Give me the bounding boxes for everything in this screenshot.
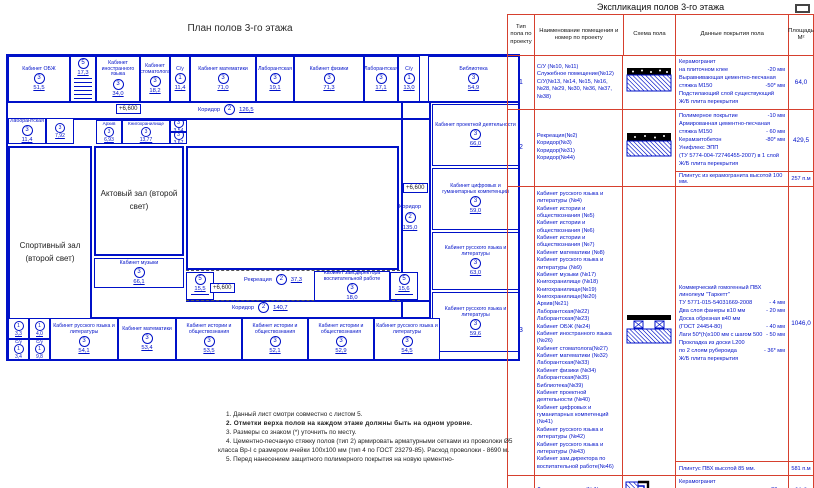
rooms-cell: Рекреация(№2)Коридор(№3)Коридор(№31)Кори… <box>535 110 623 186</box>
room: Кабинет русского языка и литературы359,6 <box>432 292 519 352</box>
coating-cell: Керамогранитна плиточном клее-20 ммВырав… <box>676 56 789 109</box>
room-label: Кабинет русского языка и литературы <box>52 324 116 336</box>
coating-layer-name: Унифлекс ЭПП <box>679 145 718 152</box>
room: Лаборантская319,1 <box>256 56 294 102</box>
room: Кабинет русского языка и литературы363,0 <box>432 232 519 290</box>
coating-layer-name: (ТУ 5774-004-72746455-2007) в 1 слой <box>679 153 779 160</box>
room-label: Кабинет истории и обществознания <box>178 324 240 336</box>
corridor-name: Рекреация <box>244 277 272 283</box>
room-type-badge: 3 <box>79 336 90 347</box>
level-mark: +6,600 <box>116 104 141 114</box>
room-type-badge: 1 <box>404 73 415 84</box>
room-label: Спортивный зал (второй свет) <box>11 240 89 266</box>
room-type-badge: 3 <box>150 76 161 87</box>
coating-layer-thickness: - 4 мм <box>769 300 785 307</box>
room-area: 126,5 <box>239 107 254 113</box>
room-area: 11,4 <box>22 137 33 143</box>
rooms-cell: Лестничная клетка(№1)Лестничная клетка(№… <box>535 476 623 488</box>
coating-layer-name: Ж/Б плита перекрытия <box>679 161 738 168</box>
room-label: Кабинет русского языка и литературы <box>434 307 517 319</box>
room-area: 4,0 <box>36 331 43 337</box>
coating-main-subrow: Керамогранитна плиточном клее-20ммЖ/Б пл… <box>676 476 813 488</box>
coating-line: Керамзитобетон-80* мм <box>679 137 785 144</box>
coating-cell: Коммерческий гомогенный ПВХлинолеум "Тар… <box>676 187 789 461</box>
coating-line: Два слоя фанеры в10 мм- 20 мм <box>679 308 785 315</box>
coating-area-cell-group: Керамогранитна плиточном клее-20ммЖ/Б пл… <box>676 476 813 488</box>
room-label: Кабинет ОБЖ <box>22 67 55 73</box>
room-name: Лаборантская(№22) <box>537 309 620 316</box>
room-type-badge: 3 <box>270 73 281 84</box>
room-label: С/у <box>176 67 184 73</box>
room-type-badge: 5 <box>195 274 206 285</box>
header-area: Площадь М² <box>789 15 813 55</box>
coating-cell: Керамогранитна плиточном клее-20ммЖ/Б пл… <box>676 476 789 488</box>
coating-line: Унифлекс ЭПП <box>679 145 785 152</box>
coating-layer-name: по 2 слоям рубероида <box>679 348 737 355</box>
table-row: 5Лестничная клетка(№1)Лестничная клетка(… <box>508 476 813 488</box>
coating-line: Коммерческий гомогенный ПВХ <box>679 285 785 292</box>
room-name: Рекреация(№2) <box>537 133 620 140</box>
coating-line: Ж/Б плита перекрытия <box>679 356 785 363</box>
room-name: Лаборантская(№35) <box>537 375 620 382</box>
coating-layer-name: Коммерческий гомогенный ПВХ <box>679 285 761 292</box>
room-area: 3,4 <box>15 354 22 360</box>
room-label: Кабинет проектной деятельности <box>435 123 516 129</box>
coating-line: на плиточном клее-20 мм <box>679 67 785 74</box>
header-floor-scheme: Схема пола <box>624 15 677 55</box>
room-name: Кабинет русского языка и литературы (№9) <box>537 257 620 272</box>
hall-room: Актовый зал (второй свет) <box>94 146 184 256</box>
room-name: Кабинет цифровых и гуманитарных компетен… <box>537 405 620 427</box>
room: Кабинет русского языка и литературы354,1 <box>50 318 118 360</box>
coating-layer-name: (ГОСТ 24454-80) <box>679 324 722 331</box>
room-name: Лаборантская(№33) <box>537 360 620 367</box>
floor-scheme-cell <box>623 476 676 488</box>
room-name: Кабинет истории и обществознания (№5) <box>537 206 620 221</box>
header-floor-type: Тип пола по проекту <box>508 15 535 55</box>
room-name: Кабинет истории и обществознания (№6) <box>537 220 620 235</box>
room-label: Архив <box>103 121 116 126</box>
room-area: 3,67 <box>174 140 184 144</box>
room-type-badge: 3 <box>174 132 184 140</box>
plinth-cell: Плинтус из керамогранита высотой 100 мм. <box>676 172 789 186</box>
sheet-frame-corner <box>795 4 810 13</box>
room-name: Коридор(№3) <box>537 140 620 147</box>
room: Кабинет истории и обществознания352,9 <box>308 318 374 360</box>
room-name: Книгохранилище(№19) <box>537 287 620 294</box>
room-type-badge: 2 <box>258 302 269 313</box>
note-item: 3. Размеры со знаком (*) уточнить по мес… <box>218 429 514 438</box>
table-header-row: Тип пола по проекту Наименование помещен… <box>508 15 813 56</box>
room-name: Кабинет математики (№32) <box>537 353 620 360</box>
room-name: Книгохранилище(№20) <box>537 294 620 301</box>
room-type-badge: 3 <box>141 127 151 137</box>
note-item: 2. Отметки верха полов на каждом этаже д… <box>218 420 514 429</box>
drawing-sheet: План полов 3-го этажа Кабинет ОБЖ351,551… <box>0 0 814 488</box>
coating-layer-thickness: - 36* мм <box>764 348 785 355</box>
room-name: Кабинет проектной деятельности (№40) <box>537 390 620 405</box>
room-type-badge: 3 <box>174 120 184 128</box>
room-area: 17,3 <box>77 70 88 76</box>
coating-line: (ТУ 5774-004-72746455-2007) в 1 слой <box>679 153 785 160</box>
floor-type-cell: 5 <box>508 476 535 488</box>
stairs-icon <box>191 294 210 297</box>
room-label: Кабинет математики <box>122 327 172 333</box>
coating-layer-name: Керамогранит <box>679 59 716 66</box>
room-type-badge: 3 <box>22 125 33 136</box>
room-name: Кабинет русского языка и литературы (№43… <box>537 442 620 457</box>
room-type-badge: 3 <box>34 73 45 84</box>
room-area: 7,92 <box>55 133 65 139</box>
corridor-label: Рекреация237,3 <box>244 274 302 285</box>
room-label: Кабинет математики <box>198 67 248 73</box>
note-item: 5. Перед нанесением защитного полимерног… <box>218 456 514 465</box>
coating-line: Подстилающий слой существующий <box>679 91 785 98</box>
room-area: 15,5 <box>194 286 205 292</box>
room-type-badge: 3 <box>104 127 114 137</box>
coating-line: Ж/Б плита перекрытия <box>679 161 785 168</box>
room-type-badge: 5 <box>78 58 89 69</box>
room-area: 15,6 <box>398 286 409 292</box>
room-label: Лаборантская <box>258 67 292 73</box>
room: Кабинет математики353,4 <box>118 318 176 360</box>
coating-layer-name: стяжка М150 <box>679 83 712 90</box>
table-row: 1С/У (№10, №11)Служебное помещение(№12)С… <box>508 56 813 110</box>
room-label: Кабинет иностранного языка <box>98 61 138 79</box>
room-area: 66,0 <box>470 141 481 147</box>
room-area: 54,9 <box>468 85 479 91</box>
room: 37,92 <box>46 118 74 144</box>
coating-layer-name: Два слоя фанеры в10 мм <box>679 308 745 315</box>
coating-line: Полимерное покрытие-10 мм <box>679 113 785 120</box>
plinth-length-cell: 581 п.м <box>789 462 813 475</box>
room: 515,6 <box>390 272 418 300</box>
corridor-label: Коридор2135,0 <box>399 204 421 231</box>
room-type-badge: 2 <box>405 212 416 223</box>
room-area: 54,5 <box>401 348 412 354</box>
coating-line: Керамогранит <box>679 479 785 486</box>
room-label: Книгохранилище <box>128 121 164 126</box>
room-type-badge: 3 <box>134 267 145 278</box>
room-name: Кабинет математики (№8) <box>537 250 620 257</box>
room-name: Кабинет музыки (№17) <box>537 272 620 279</box>
header-coating-data: Данные покрытия пола <box>676 15 789 55</box>
coating-layer-name: Полимерное покрытие <box>679 113 738 120</box>
room-type-badge: 3 <box>270 336 281 347</box>
explication-rows: 1С/У (№10, №11)Служебное помещение(№12)С… <box>508 56 813 488</box>
room-area: 3,3 <box>15 331 22 337</box>
coating-layer-name: Подстилающий слой существующий <box>679 91 774 98</box>
room-label: Лаборантская <box>364 67 398 73</box>
stairs-icon <box>395 294 414 297</box>
room: Библиотека354,9 <box>428 56 519 102</box>
area-cell: 429,5 <box>789 110 813 171</box>
room-name: Архив(№21) <box>537 301 620 308</box>
room-name: Кабинет стоматолога(№27) <box>537 346 620 353</box>
coating-area-cell-group: Коммерческий гомогенный ПВХлинолеум "Тар… <box>676 187 813 475</box>
room-label: Библиотека <box>459 67 487 73</box>
room-type-badge: 1 <box>35 321 45 331</box>
room: Кабинет иностранного языка334,0 <box>96 56 140 102</box>
room: Лаборантская311,4 <box>8 118 46 144</box>
room-label: Кабинет физики <box>310 67 349 73</box>
header-room-names: Наименование помещения и номер по проект… <box>535 15 624 55</box>
room-name: Коридор(№44) <box>537 155 620 162</box>
room-type-badge: 3 <box>347 283 358 294</box>
room-area: 18,0 <box>346 295 357 301</box>
room: 14,0 <box>29 318 50 339</box>
coating-layer-name: Ж/Б плита перекрытия <box>679 356 738 363</box>
room: Кабинет физики371,3 <box>294 56 364 102</box>
room: С/у113,0 <box>398 56 420 102</box>
coating-line: ТУ 5771-015-54031669-2008- 4 мм <box>679 300 785 307</box>
room-type-badge: 3 <box>324 73 335 84</box>
room: Кабинет истории и обществознания352,1 <box>242 318 308 360</box>
table-row: 3Кабинет русского языка и литературы (№4… <box>508 187 813 476</box>
coating-layer-name: Керамогранит <box>679 479 716 486</box>
coating-line: по 2 слоям рубероида- 36* мм <box>679 348 785 355</box>
coating-layer-name: Доска обрезная в40 мм <box>679 316 740 323</box>
room-name: Кабинет русского языка и литературы (№4) <box>537 191 620 206</box>
room-label: Кабинет зам.директора воспитательной раб… <box>316 271 388 282</box>
coating-layer-name: Керамзитобетон <box>679 137 721 144</box>
coating-layer-thickness: - 50 мм <box>766 332 785 339</box>
floor-type-cell: 2 <box>508 110 535 186</box>
room-type-badge: 3 <box>470 196 481 207</box>
note-item: 4. Цементно-песчаную стяжку полов (тип 2… <box>218 438 514 456</box>
room: 33,67 <box>170 132 187 144</box>
area-cell: 1046,0 <box>789 187 813 461</box>
coating-line: линолеум "Таркетт" <box>679 292 785 299</box>
room: Кабинет ОБЖ351,5 <box>8 56 70 102</box>
coating-line: Доска обрезная в40 мм <box>679 316 785 323</box>
room-area: 135,0 <box>403 225 418 231</box>
room-type-badge: 3 <box>468 73 479 84</box>
coating-cell: Полимерное покрытие-10 ммАрмированная це… <box>676 110 789 171</box>
room-area: 52,9 <box>335 348 346 354</box>
coating-main-subrow: Коммерческий гомогенный ПВХлинолеум "Тар… <box>676 187 813 461</box>
coating-layer-name: на плиточном клее <box>679 67 728 74</box>
coating-line: Прокладка из доски L200 <box>679 340 785 347</box>
room-area: 54,1 <box>78 348 89 354</box>
room-area: 71,3 <box>323 85 334 91</box>
room-type-badge: 3 <box>218 73 229 84</box>
room-name: Кабинет физики (№34) <box>537 368 620 375</box>
level-mark: +6,600 <box>403 183 428 193</box>
area-cell: 61,8 <box>789 476 813 488</box>
room: 517,3 <box>70 56 96 102</box>
room-name: С/У(№13, №14, №15, №16, №28, №29, №30, №… <box>537 79 620 101</box>
room-label: С/у <box>405 67 413 73</box>
room: Кабинет математики371,0 <box>190 56 256 102</box>
table-title: Экспликация полов 3-го этажа <box>507 2 814 12</box>
plan-title: План полов 3-го этажа <box>130 23 350 34</box>
coating-area-cell-group: Полимерное покрытие-10 ммАрмированная це… <box>676 110 813 186</box>
coating-line: Армированная цементно-песчаная <box>679 121 785 128</box>
room: С/у13,4 <box>8 339 29 360</box>
room: Кабинет зам.директора воспитательной раб… <box>314 271 390 301</box>
rooms-cell: С/У (№10, №11)Служебное помещение(№12)С/… <box>535 56 623 109</box>
room-area: 9,8 <box>36 354 43 360</box>
room: 13,3 <box>8 318 29 339</box>
rooms-cell: Кабинет русского языка и литературы (№4)… <box>535 187 623 475</box>
room-name: Кабинет зам.директора по воспитательной … <box>537 456 620 471</box>
room-type-badge: 3 <box>204 336 215 347</box>
room-label: Кабинет истории и обществознания <box>244 324 306 336</box>
corridor-name: Коридор <box>198 107 220 113</box>
room-area: 37,3 <box>291 277 302 283</box>
room-label: Кабинет музыки <box>120 261 159 267</box>
room-type-badge: 3 <box>113 79 124 90</box>
coating-layer-name: стяжка М150 <box>679 129 712 136</box>
room-name: Кабинет русского языка и литературы (№42… <box>537 427 620 442</box>
floor-scheme-cell <box>623 110 676 186</box>
room-area: 11,4 <box>175 85 186 91</box>
room-type-badge: 1 <box>14 321 24 331</box>
room-area: 66,1 <box>133 279 144 285</box>
corridor-label: Коридор2140,7 <box>232 302 288 313</box>
table-row: 2Рекреация(№2)Коридор(№3)Коридор(№31)Кор… <box>508 110 813 187</box>
room-type-badge: 1 <box>175 73 186 84</box>
room-type-badge: 5 <box>399 274 410 285</box>
floor-scheme-cell <box>623 187 676 475</box>
level-mark: +6,600 <box>210 283 235 293</box>
plinth-length-cell: 257 п.м <box>789 172 813 186</box>
coating-layer-thickness: -50* мм <box>765 83 785 90</box>
room-area: 34,0 <box>112 91 123 97</box>
room-area: 71,0 <box>217 85 228 91</box>
area-cell: 64,0 <box>789 56 813 109</box>
room-name: Лаборантская(№23) <box>537 316 620 323</box>
coating-layer-thickness: - 40 мм <box>766 324 785 331</box>
polymer_screed-scheme-icon <box>626 132 672 163</box>
coating-line: Керамогранит <box>679 59 785 66</box>
room-name: С/У (№10, №11) <box>537 64 620 71</box>
plinth-subrow: Плинтус из керамогранита высотой 100 мм.… <box>676 171 813 186</box>
coating-line: стяжка М150- 60 мм <box>679 129 785 136</box>
room-area: 6,93 <box>104 137 114 143</box>
room: Архив36,93 <box>96 120 122 144</box>
room-area: 140,7 <box>273 305 288 311</box>
room-area: 53,5 <box>203 348 214 354</box>
room-name: Кабинет истории и обществознания (№7) <box>537 235 620 250</box>
room-label: Кабинет цифровых и гуманитарных компетен… <box>434 184 517 196</box>
coating-layer-name: Лаги 50*(h)х100 мм с шагом 500 <box>679 332 762 339</box>
room: Лаборантская317,1 <box>364 56 398 102</box>
room: Кабинет русского языка и литературы354,5 <box>374 318 440 360</box>
room-type-badge: 3 <box>470 258 481 269</box>
coating-line: (ГОСТ 24454-80)- 40 мм <box>679 324 785 331</box>
coating-layer-thickness: -80* мм <box>765 137 785 144</box>
coating-line: Ж/Б плита перекрытия <box>679 99 785 106</box>
courtyard-outline <box>186 146 399 270</box>
room-area: 19,1 <box>269 85 280 91</box>
room-area: 59,6 <box>470 331 481 337</box>
coating-main-subrow: Керамогранитна плиточном клее-20 ммВырав… <box>676 56 813 109</box>
room-name: Книгохранилище (№18) <box>537 279 620 286</box>
room-name: Библиотека(№39) <box>537 383 620 390</box>
coating-line: Выравнивающая цементно-песчаная <box>679 75 785 82</box>
room-type-badge: 1 <box>14 344 24 354</box>
room-area: 51,5 <box>33 85 44 91</box>
room-label: Кабинет русского языка и литературы <box>376 324 438 336</box>
room-type-badge: 3 <box>336 336 347 347</box>
notes-block: 1. Данный лист смотри совместно с листом… <box>218 411 514 465</box>
room-name: Коридор(№31) <box>537 148 620 155</box>
room: С/у111,4 <box>170 56 190 102</box>
explication-table: Тип пола по проекту Наименование помещен… <box>507 14 814 488</box>
room-label: Актовый зал (второй свет) <box>97 188 181 214</box>
floor-scheme-cell <box>623 56 676 109</box>
room: 33,54 <box>170 120 187 132</box>
corridor-name: Коридор <box>232 305 254 311</box>
coating-layer-name: Армированная цементно-песчаная <box>679 121 770 128</box>
explication-section: Экспликация полов 3-го этажа Тип пола по… <box>507 2 814 488</box>
corridor-name: Коридор <box>399 204 421 210</box>
stairs-scheme-icon <box>624 478 674 488</box>
room-label: Лаборантская <box>10 119 44 125</box>
room: Кабинет музыки366,1 <box>94 258 184 288</box>
room-name: Служебное помещение(№12) <box>537 71 620 78</box>
room-type-badge: 3 <box>470 319 481 330</box>
coating-layer-name: Ж/Б плита перекрытия <box>679 99 738 106</box>
plinth-cell: Плинтус ПВХ высотой 85 мм. <box>676 462 789 475</box>
coating-layer-name: линолеум "Таркетт" <box>679 292 730 299</box>
room-area: 63,0 <box>470 270 481 276</box>
room-area: 52,1 <box>269 348 280 354</box>
tile_screed-scheme-icon <box>626 67 672 98</box>
coating-layer-name: ТУ 5771-015-54031669-2008 <box>679 300 752 307</box>
floor-type-cell: 1 <box>508 56 535 109</box>
room-label: Кабинет истории и обществознания <box>310 324 372 336</box>
room: Кабинет проектной деятельности366,0 <box>432 104 519 166</box>
room-label: Кабинет русского языка и литературы <box>434 246 517 258</box>
room-type-badge: 3 <box>402 336 413 347</box>
room-type-badge: 2 <box>224 104 235 115</box>
coating-main-subrow: Полимерное покрытие-10 ммАрмированная це… <box>676 110 813 171</box>
stairs-icon <box>74 78 91 99</box>
note-item: 1. Данный лист смотри совместно с листом… <box>218 411 514 420</box>
room-type-badge: 3 <box>142 333 153 344</box>
room-type-badge: 3 <box>376 73 387 84</box>
coating-layer-thickness: -10 мм <box>768 113 785 120</box>
coating-layer-thickness: - 60 мм <box>766 129 785 136</box>
room: Кабинет истории и обществознания353,5 <box>176 318 242 360</box>
room-type-badge: 3 <box>470 129 481 140</box>
room-type-badge: 2 <box>276 274 287 285</box>
room: Кабинет цифровых и гуманитарных компетен… <box>432 168 519 230</box>
plinth-subrow: Плинтус ПВХ высотой 85 мм.581 п.м <box>676 461 813 475</box>
room-area: 17,1 <box>375 85 386 91</box>
coating-layer-name: Выравнивающая цементно-песчаная <box>679 75 776 82</box>
coating-layer-thickness: -20 мм <box>768 67 785 74</box>
room: Кабинет стоматолога318,2 <box>140 56 170 102</box>
room-area: 59,0 <box>470 208 481 214</box>
room-name: Кабинет иностранного языка (№26) <box>537 331 620 346</box>
room-area: 53,4 <box>141 345 152 351</box>
linoleum_joists-scheme-icon <box>626 311 672 350</box>
coating-layer-thickness: - 20 мм <box>766 308 785 315</box>
coating-area-cell-group: Керамогранитна плиточном клее-20 ммВырав… <box>676 56 813 109</box>
room-area: 13,77 <box>140 137 153 143</box>
room-name: Кабинет ОБЖ (№24) <box>537 324 620 331</box>
room-label: Кабинет стоматолога <box>140 64 170 76</box>
coating-line: Лаги 50*(h)х100 мм с шагом 500- 50 мм <box>679 332 785 339</box>
room: С/у19,8 <box>29 339 50 360</box>
coating-layer-name: Прокладка из доски L200 <box>679 340 745 347</box>
room-area: 18,2 <box>149 88 160 94</box>
room-area: 13,0 <box>403 85 414 91</box>
